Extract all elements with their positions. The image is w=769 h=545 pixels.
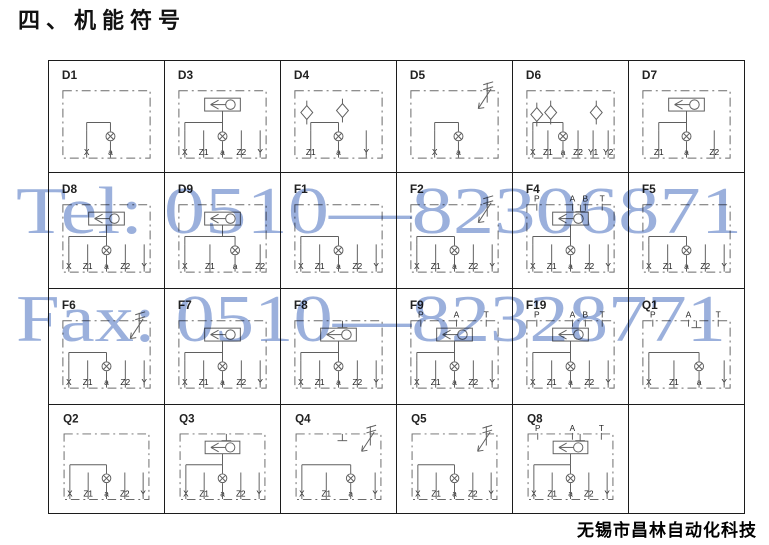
relief-valve-icon — [478, 82, 493, 109]
cell-label: F7 — [178, 298, 192, 312]
shuttle-valve-icon — [553, 212, 589, 225]
orifice-icon — [102, 246, 111, 255]
relief-valve-icon — [130, 312, 145, 339]
symbol-cell-Q4: Q4XZ1aY — [281, 405, 397, 514]
orifice-icon — [102, 362, 111, 371]
hydraulic-symbol-diagram: F6XZ1aZ2Y — [49, 289, 164, 404]
cell-label: F1 — [294, 182, 308, 196]
hydraulic-symbol-diagram: D9XZ1aZ2 — [165, 173, 280, 288]
symbol-boundary — [527, 91, 614, 158]
symbol-boundary — [63, 91, 150, 158]
cell-label: F5 — [642, 182, 656, 196]
symbol-cell-F4: F4PABTXZ1aZ2Y — [513, 173, 629, 289]
orifice-icon — [695, 362, 704, 371]
orifice-icon — [346, 474, 355, 483]
hydraulic-symbol-diagram: F9PATXZ1aZ2Y — [397, 289, 512, 404]
page-title: 四、机能符号 — [18, 3, 186, 35]
shuttle-valve-icon — [321, 328, 357, 341]
cell-label: D6 — [526, 68, 542, 82]
orifice-icon — [559, 132, 568, 141]
symbol-cell-D3: D3XZ1aZ2Y — [165, 61, 281, 173]
symbol-cell-D8: D8XZ1aZ2Y — [49, 173, 165, 289]
symbol-cell-Q2: Q2XZ1aZ2Y — [49, 405, 165, 514]
orifice-icon — [450, 362, 459, 371]
symbol-cell-F8: F8XZ1aZ2Y — [281, 289, 397, 405]
orifice-icon — [682, 132, 691, 141]
top-port-label: A — [570, 310, 576, 320]
plug-icon — [338, 434, 348, 441]
check-valve-icon — [545, 101, 557, 125]
company-name: 无锡市昌林自动化科技 — [577, 516, 757, 541]
symbol-cell-D9: D9XZ1aZ2 — [165, 173, 281, 289]
orifice-icon — [566, 474, 575, 483]
shuttle-valve-icon — [89, 212, 125, 225]
hydraulic-symbol-diagram: D1Xa — [49, 61, 164, 172]
check-valve-icon — [590, 101, 602, 125]
symbol-boundary — [179, 205, 266, 272]
cell-label: D8 — [62, 182, 78, 196]
hydraulic-symbol-diagram — [629, 405, 744, 513]
plug-icon — [575, 434, 585, 441]
plug-icon — [222, 434, 232, 441]
cell-label: D4 — [294, 68, 310, 82]
hydraulic-symbol-diagram: D4Z1aY — [281, 61, 396, 172]
top-port-label: P — [534, 194, 540, 204]
symbol-grid: D1XaD3XZ1aZ2YD4Z1aYD5XaD6XZ1aZ2Y1Y2D7Z1a… — [48, 60, 745, 514]
hydraulic-symbol-diagram: Q1PATXZ1aY — [629, 289, 744, 404]
symbol-cell-D7: D7Z1aZ2 — [629, 61, 745, 173]
hydraulic-symbol-diagram: D6XZ1aZ2Y1Y2 — [513, 61, 628, 172]
top-port-label: B — [583, 194, 589, 204]
symbol-cell-F19: F19PABTXZ1aZ2Y — [513, 289, 629, 405]
symbol-cell-Q1: Q1PATXZ1aY — [629, 289, 745, 405]
shuttle-valve-icon — [437, 328, 473, 341]
symbol-cell-F6: F6XZ1aZ2Y — [49, 289, 165, 405]
orifice-icon — [450, 246, 459, 255]
symbol-cell-D4: D4Z1aY — [281, 61, 397, 173]
relief-valve-icon — [478, 196, 493, 223]
check-valve-icon — [301, 101, 313, 125]
cell-label: D3 — [178, 68, 194, 82]
hydraulic-symbol-diagram: D8XZ1aZ2Y — [49, 173, 164, 288]
cell-label: D1 — [62, 68, 78, 82]
symbol-cell-F2: F2XZ1aZ2Y — [397, 173, 513, 289]
top-port-label: T — [600, 194, 605, 204]
symbol-boundary — [643, 321, 730, 388]
symbol-boundary — [411, 91, 498, 158]
top-port-label: T — [599, 424, 604, 433]
orifice-icon — [231, 246, 240, 255]
symbol-cell-D5: D5Xa — [397, 61, 513, 173]
cell-label: Q5 — [411, 413, 427, 425]
orifice-icon — [218, 132, 227, 141]
top-port-label: P — [535, 424, 541, 433]
hydraulic-symbol-diagram: F1XZ1aZ2Y — [281, 173, 396, 288]
shuttle-valve-icon — [205, 212, 241, 225]
top-port-label: A — [454, 310, 460, 320]
top-port-label: P — [650, 310, 656, 320]
hydraulic-symbol-diagram: D7Z1aZ2 — [629, 61, 744, 172]
shuttle-valve-icon — [669, 98, 705, 111]
hydraulic-symbol-diagram: Q5XZ1aZ2Y — [397, 405, 512, 513]
shuttle-valve-icon — [205, 441, 240, 454]
top-port-label: T — [484, 310, 489, 320]
hydraulic-symbol-diagram: F2XZ1aZ2Y — [397, 173, 512, 288]
orifice-icon — [334, 362, 343, 371]
hydraulic-symbol-diagram: F5XZ1aZ2Y — [629, 173, 744, 288]
catalog-page: 四、机能符号 D1XaD3XZ1aZ2YD4Z1aYD5XaD6XZ1aZ2Y1… — [0, 0, 769, 545]
cell-label: D7 — [642, 68, 658, 82]
cell-label: D9 — [178, 182, 194, 196]
symbol-cell-Q5: Q5XZ1aZ2Y — [397, 405, 513, 514]
top-port-label: T — [600, 310, 605, 320]
relief-valve-icon — [362, 425, 376, 451]
cell-label: D5 — [410, 68, 426, 82]
top-port-label: A — [686, 310, 692, 320]
plug-icon — [575, 205, 585, 212]
shuttle-valve-icon — [205, 98, 241, 111]
cell-label: Q3 — [179, 413, 195, 425]
symbol-cell-F9: F9PATXZ1aZ2Y — [397, 289, 513, 405]
hydraulic-symbol-diagram: D3XZ1aZ2Y — [165, 61, 280, 172]
hydraulic-symbol-diagram: F7XZ1aZ2Y — [165, 289, 280, 404]
top-port-label: T — [716, 310, 721, 320]
symbol-cell-empty — [629, 405, 745, 514]
symbol-cell-F5: F5XZ1aZ2Y — [629, 173, 745, 289]
symbol-cell-Q3: Q3XZ1aZ2Y — [165, 405, 281, 514]
orifice-icon — [566, 246, 575, 255]
top-port-label: P — [534, 310, 540, 320]
orifice-icon — [682, 246, 691, 255]
hydraulic-symbol-diagram: Q3XZ1aZ2Y — [165, 405, 280, 513]
symbol-cell-D6: D6XZ1aZ2Y1Y2 — [513, 61, 629, 173]
cell-label: Q2 — [63, 413, 78, 425]
cell-label: F8 — [294, 298, 308, 312]
shuttle-valve-icon — [553, 441, 588, 454]
hydraulic-symbol-diagram: F19PABTXZ1aZ2Y — [513, 289, 628, 404]
hydraulic-symbol-diagram: F8XZ1aZ2Y — [281, 289, 396, 404]
top-port-label: A — [570, 194, 576, 204]
check-valve-icon — [337, 99, 349, 123]
symbol-cell-D1: D1Xa — [49, 61, 165, 173]
shuttle-valve-icon — [553, 328, 589, 341]
relief-valve-icon — [478, 425, 492, 451]
orifice-icon — [334, 132, 343, 141]
symbol-boundary — [296, 434, 381, 500]
hydraulic-symbol-diagram: Q2XZ1aZ2Y — [49, 405, 164, 513]
hydraulic-symbol-diagram: Q4XZ1aY — [281, 405, 396, 513]
orifice-icon — [334, 246, 343, 255]
hydraulic-symbol-diagram: F4PABTXZ1aZ2Y — [513, 173, 628, 288]
hydraulic-symbol-diagram: Q8PATXZ1aZ2Y — [513, 405, 628, 513]
orifice-icon — [218, 362, 227, 371]
symbol-cell-F7: F7XZ1aZ2Y — [165, 289, 281, 405]
orifice-icon — [450, 474, 459, 483]
orifice-icon — [454, 132, 463, 141]
plug-icon — [338, 321, 348, 328]
hydraulic-symbol-diagram: D5Xa — [397, 61, 512, 172]
orifice-icon — [106, 132, 115, 141]
top-port-label: P — [418, 310, 424, 320]
orifice-icon — [218, 474, 227, 483]
plug-icon — [691, 321, 701, 328]
cell-label: Q4 — [295, 413, 311, 425]
symbol-cell-F1: F1XZ1aZ2Y — [281, 173, 397, 289]
top-port-label: B — [583, 310, 589, 320]
top-port-label: A — [570, 424, 576, 433]
symbol-cell-Q8: Q8PATXZ1aZ2Y — [513, 405, 629, 514]
orifice-icon — [102, 474, 111, 483]
orifice-icon — [566, 362, 575, 371]
cell-label: F6 — [62, 298, 76, 312]
shuttle-valve-icon — [205, 328, 241, 341]
cell-label: F2 — [410, 182, 424, 196]
